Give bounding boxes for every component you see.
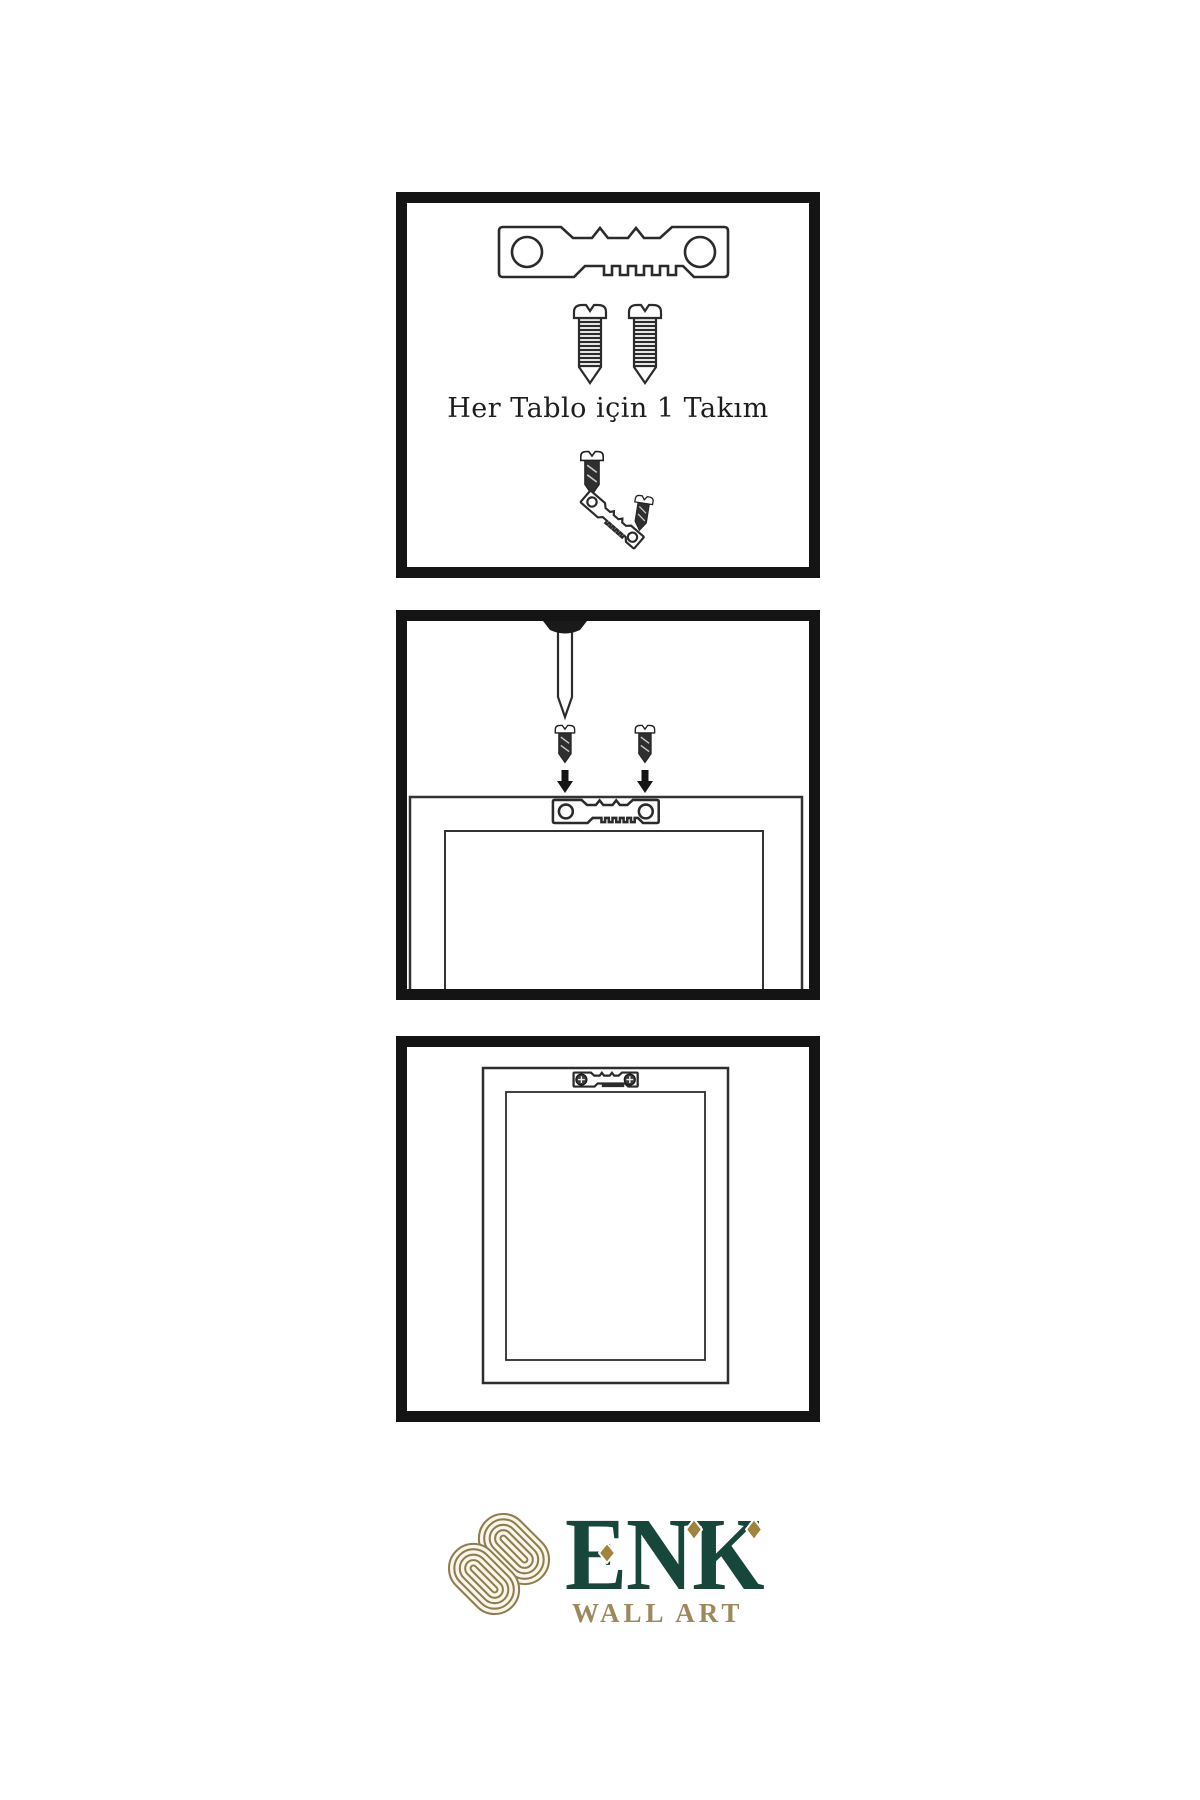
dark-screw-icon xyxy=(631,495,654,532)
dark-screw-icon xyxy=(555,725,574,762)
step-3-panel xyxy=(396,1036,820,1422)
diamond-accent-icon xyxy=(745,1518,763,1541)
diamond-accent-icon xyxy=(685,1518,703,1541)
installation-illustration xyxy=(407,621,809,989)
dark-screw-icon xyxy=(581,452,603,495)
dark-screw-icon xyxy=(635,725,654,762)
frame-back-icon xyxy=(410,797,802,989)
frame-inner-edge xyxy=(506,1092,705,1360)
kit-caption: Her Tablo için 1 Takım xyxy=(407,392,809,426)
phillips-screw-icon xyxy=(624,1074,635,1085)
step-1-panel: Her Tablo için 1 Takım xyxy=(396,192,820,578)
brand-logo: ENK WALL ART xyxy=(437,1498,782,1643)
step-2-panel xyxy=(396,610,820,1000)
diamond-accent-icon xyxy=(598,1542,616,1564)
sawtooth-hanger-icon xyxy=(580,490,644,548)
hardware-kit-illustration xyxy=(407,203,809,567)
instruction-sheet: Her Tablo için 1 Takım xyxy=(0,0,1200,1800)
screw-icon xyxy=(574,305,606,383)
knot-logo-icon xyxy=(437,1501,561,1627)
phillips-screw-icon xyxy=(576,1074,587,1085)
frame-outer-edge xyxy=(483,1068,728,1383)
sawtooth-hanger-icon xyxy=(553,800,659,823)
arrow-down-icon xyxy=(637,770,653,793)
sawtooth-hanger-icon xyxy=(499,227,728,277)
arrow-down-icon xyxy=(557,770,573,793)
brand-subtitle: WALL ART xyxy=(572,1598,743,1629)
brand-name: ENK xyxy=(565,1503,764,1607)
hung-frame-icon xyxy=(407,1047,809,1411)
screw-icon xyxy=(629,305,661,383)
nail-icon xyxy=(543,621,587,717)
